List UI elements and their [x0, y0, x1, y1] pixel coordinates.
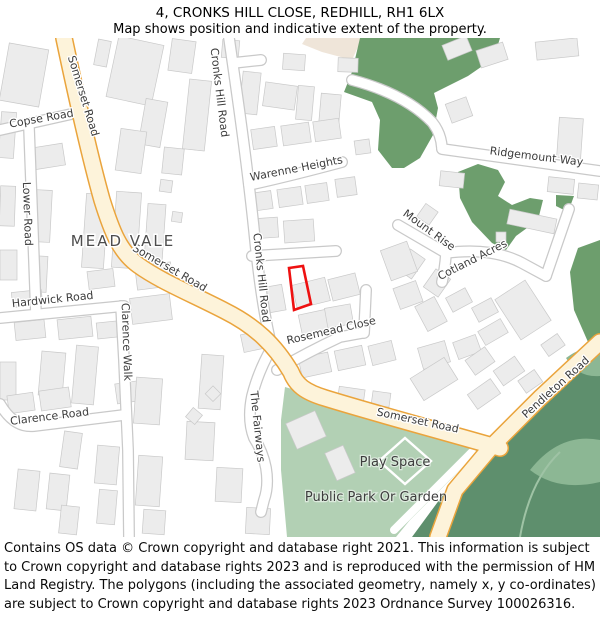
- copyright-notice: Contains OS data © Crown copyright and d…: [0, 537, 600, 615]
- map-canvas: Somerset Road Somerset Road Somerset Roa…: [0, 38, 600, 537]
- area-label-mead-vale: MEAD VALE: [71, 232, 175, 250]
- map-header: 4, CRONKS HILL CLOSE, REDHILL, RH1 6LX M…: [0, 0, 600, 38]
- road-label-clarence-walk: Clarence Walk: [119, 303, 135, 382]
- poi-label-play-space: Play Space: [360, 455, 431, 470]
- poi-label-public-park: Public Park Or Garden: [305, 490, 447, 505]
- property-address-title: 4, CRONKS HILL CLOSE, REDHILL, RH1 6LX: [0, 5, 600, 22]
- map-svg: Somerset Road Somerset Road Somerset Roa…: [0, 38, 600, 537]
- map-description: Map shows position and indicative extent…: [0, 22, 600, 38]
- road-label-lower-road: Lower Road: [20, 182, 35, 246]
